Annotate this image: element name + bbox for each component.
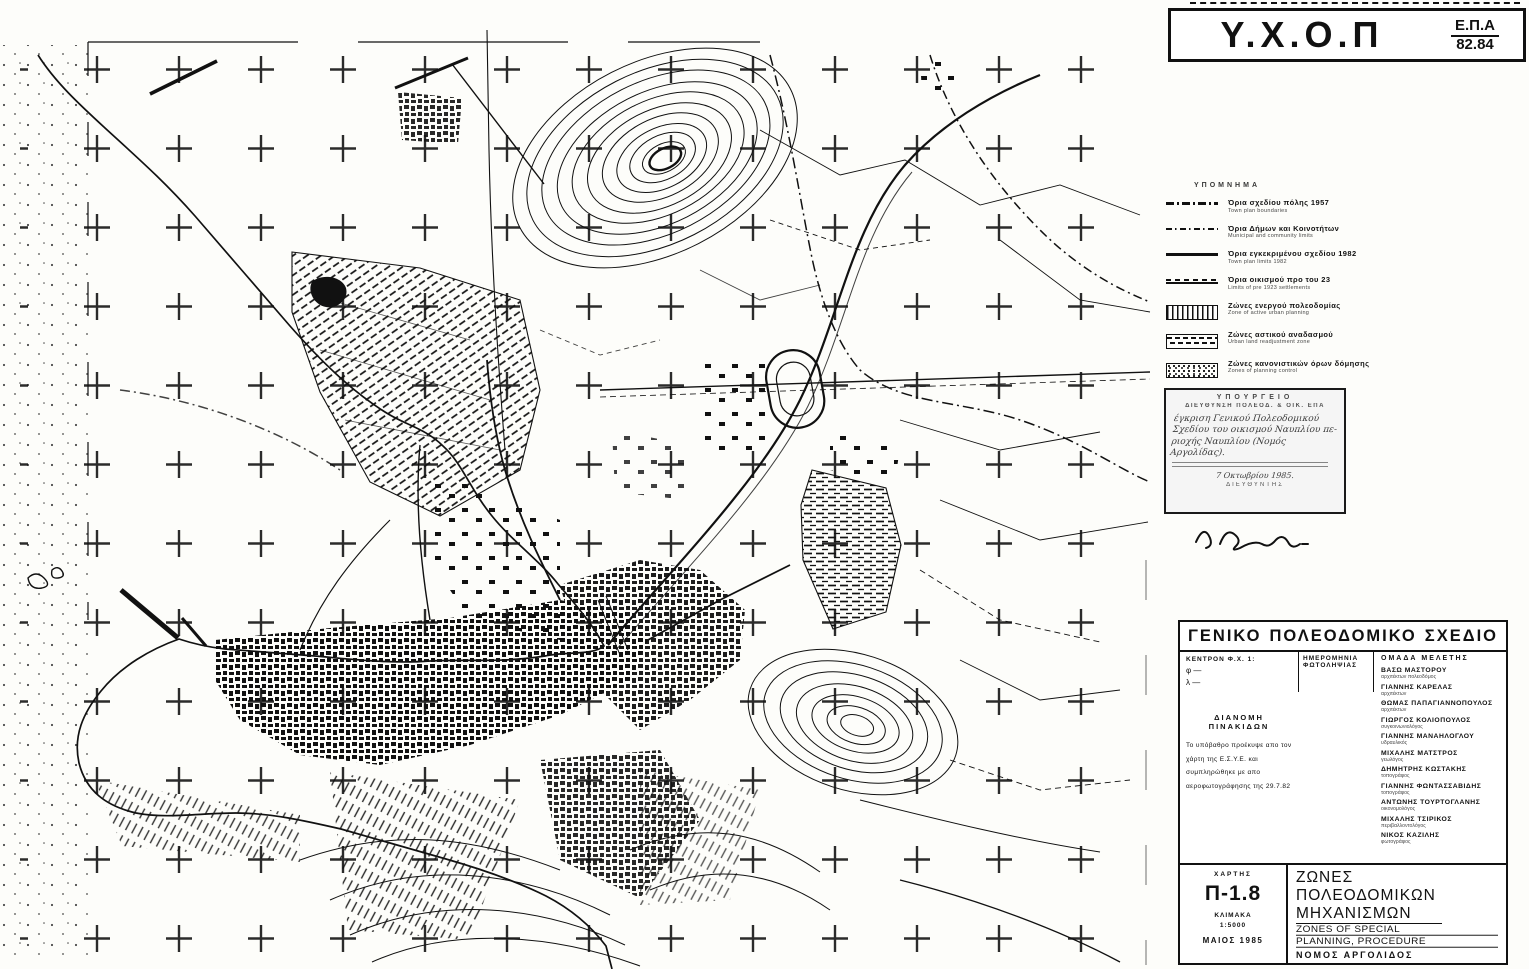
dash-dot-thick-line-swatch bbox=[1166, 202, 1218, 205]
title-block-header: ΓΕΝΙΚΟ ΠΟΛΕΟΔΟΜΙΚΟ ΣΧΕΔΙΟ bbox=[1180, 622, 1506, 652]
team-label: ΟΜΑΔΑ ΜΕΛΕΤΗΣ bbox=[1381, 655, 1499, 662]
legend-label-en: Town plan limits 1982 bbox=[1228, 259, 1357, 265]
dashed-hatch-box-swatch bbox=[1166, 334, 1218, 349]
stamp-director-title: ΔΙΕΥΘΥΝΤΗΣ bbox=[1172, 482, 1338, 488]
title-word: ΣΧΕΔΙΟ bbox=[1425, 627, 1498, 646]
prefecture-label: ΝΟΜΟΣ ΑΡΓΟΛΙΔΟΣ bbox=[1296, 950, 1498, 960]
program-years: 82.84 bbox=[1456, 36, 1494, 53]
legend-item: Ζώνες αστικού αναδασμού Urban land readj… bbox=[1166, 331, 1384, 349]
legend: ΥΠΟΜΝΗΜΑ Όρια σχεδίου πόλης 1957 Town pl… bbox=[1166, 182, 1384, 422]
dash-dot-thin-line-swatch bbox=[1166, 228, 1218, 230]
subject-english-line2: PLANNING, PROCEDURE bbox=[1296, 936, 1498, 947]
distribution-note: Το υπόβαθρο προέκυψε απο τον χάρτη της Ε… bbox=[1186, 739, 1292, 794]
legend-label-en: Municipal and community limits bbox=[1228, 233, 1339, 239]
team-member-role: τοπογράφος bbox=[1381, 790, 1499, 796]
map-number-cell: ΧΑΡΤΗΣ Π-1.8 ΚΛΙΜΑΚΑ 1:5000 ΜΑΙΟΣ 1985 bbox=[1180, 865, 1288, 963]
team-member-role: αρχιτέκτων bbox=[1381, 707, 1499, 713]
team-member-role: φωτογράφος bbox=[1381, 839, 1499, 845]
stamp-rule bbox=[1172, 462, 1328, 463]
program-name: Ε.Π.Α bbox=[1451, 18, 1499, 37]
legend-item: Όρια σχεδίου πόλης 1957 Town plan bounda… bbox=[1166, 199, 1384, 214]
distribution-title: ΔΙΑΝΟΜΗ ΠΙΝΑΚΙΔΩΝ bbox=[1186, 713, 1292, 731]
legend-item: Όρια Δήμων και Κοινοτήτων Municipal and … bbox=[1166, 225, 1384, 240]
scale-value: 1:5000 bbox=[1220, 922, 1246, 929]
sea-speckle bbox=[0, 45, 90, 955]
legend-label-en: Zones of planning control bbox=[1228, 368, 1369, 374]
legend-label-gr: Ζώνες ενεργού πολεοδομίας bbox=[1228, 302, 1341, 311]
phi-coordinate: φ — bbox=[1186, 666, 1292, 675]
solid-dashed-line-swatch bbox=[1166, 279, 1218, 284]
title-word: ΠΟΛΕΟΔΟΜΙΚΟ bbox=[1269, 627, 1416, 646]
center-label: ΚΕΝΤΡΟΝ Φ.Χ. 1: bbox=[1186, 656, 1292, 663]
team-member-role: αρχιτέκτων bbox=[1381, 691, 1499, 697]
scanned-planning-map-sheet: Υ.Χ.Ο.Π Ε.Π.Α 82.84 ΥΠΟΜΝΗΜΑ Όρια σχεδίο… bbox=[0, 0, 1529, 969]
title-word: ΓΕΝΙΚΟ bbox=[1188, 627, 1261, 646]
subject-greek-line1: ΖΩΝΕΣ ΠΟΛΕΟΔΟΜΙΚΩΝ bbox=[1296, 869, 1498, 905]
legend-label-gr: Ζώνες αστικού αναδασμού bbox=[1228, 331, 1333, 340]
distribution-cell: ΔΙΑΝΟΜΗ ΠΙΝΑΚΙΔΩΝ Το υπόβαθρο προέκυψε α… bbox=[1186, 713, 1292, 794]
team-member-name: ΓΙΩΡΓΟΣ ΚΟΛΙΟΠΟΥΛΟΣ bbox=[1381, 717, 1499, 724]
program-box: Ε.Π.Α 82.84 bbox=[1433, 18, 1523, 53]
legend-title: ΥΠΟΜΝΗΜΑ bbox=[1194, 182, 1384, 189]
legend-label-en: Town plan boundaries bbox=[1228, 208, 1329, 214]
header-dashed-rule-top bbox=[1190, 2, 1520, 4]
team-member-name: ΜΙΧΑΛΗΣ ΤΣΙΡΙΚΟΣ bbox=[1381, 816, 1499, 823]
scale-label: ΚΛΙΜΑΚΑ bbox=[1214, 912, 1251, 919]
photo-date-label: ΗΜΕΡΟΜΗΝΙΑ bbox=[1303, 655, 1369, 662]
stamp-rule bbox=[1172, 466, 1328, 467]
map-label: ΧΑΡΤΗΣ bbox=[1180, 871, 1286, 878]
sheet-center-cell: ΚΕΝΤΡΟΝ Φ.Χ. 1: φ — λ — ΔΙΑΝΟΜΗ ΠΙΝΑΚΙΔΩ… bbox=[1180, 652, 1298, 864]
team-member-name: ΓΙΑΝΝΗΣ ΚΑΡΕΛΑΣ bbox=[1381, 684, 1499, 691]
photo-date-label: ΦΩΤΟΛΗΨΙΑΣ bbox=[1303, 662, 1369, 669]
legend-label-en: Zone of active urban planning bbox=[1228, 310, 1341, 316]
legend-item: Όρια οικισμού προ του 23 Limits of pre 1… bbox=[1166, 276, 1384, 291]
study-team-cell: ΟΜΑΔΑ ΜΕΛΕΤΗΣ ΒΑΣΩ ΜΑΣΤΟΡΟΥαρχιτέκτων πο… bbox=[1374, 652, 1506, 864]
team-member-name: ΓΙΑΝΝΗΣ ΦΩΝΤΑΣΣΑΒΙΔΗΣ bbox=[1381, 783, 1499, 790]
team-member-role: γεωλόγος bbox=[1381, 757, 1499, 763]
legend-label-en: Urban land readjustment zone bbox=[1228, 339, 1333, 345]
team-member-role: τοπογράφος bbox=[1381, 773, 1499, 779]
team-member-role: περιβαλλοντολόγος bbox=[1381, 823, 1499, 829]
legend-label-gr: Όρια Δήμων και Κοινοτήτων bbox=[1228, 225, 1339, 234]
dotted-box-swatch bbox=[1166, 363, 1218, 378]
solid-line-swatch bbox=[1166, 253, 1218, 256]
team-member-role: αρχιτέκτων πολεοδόμος bbox=[1381, 674, 1499, 680]
stamp-handwriting-line: Σχεδίου του οικισμού Ναυπλίου πε- bbox=[1172, 425, 1339, 436]
signature-scribble bbox=[1190, 516, 1330, 556]
stamp-ministry-line: ΥΠΟΥΡΓΕΙΟ bbox=[1172, 394, 1338, 401]
map-date: ΜΑΙΟΣ 1985 bbox=[1180, 936, 1286, 945]
team-member-name: ΓΙΑΝΝΗΣ ΜΑΝΑΗΛΟΓΛΟΥ bbox=[1381, 733, 1499, 740]
agency-header-box: Υ.Χ.Ο.Π Ε.Π.Α 82.84 bbox=[1168, 8, 1526, 62]
subject-english-line1: ZONES OF SPECIAL bbox=[1296, 924, 1498, 935]
legend-label-en: Limits of pre 1923 settlements bbox=[1228, 285, 1330, 291]
legend-item: Ζώνες ενεργού πολεοδομίας Zone of active… bbox=[1166, 302, 1384, 320]
stamp-handwriting-line: ριοχής Ναυπλίου (Νομός Αργολίδας). bbox=[1170, 437, 1338, 460]
subject-cell: ΖΩΝΕΣ ΠΟΛΕΟΔΟΜΙΚΩΝ ΜΗΧΑΝΙΣΜΩΝ ZONES OF S… bbox=[1288, 865, 1506, 963]
team-member-role: υδραυλικός bbox=[1381, 740, 1499, 746]
team-member-name: ΑΝΤΩΝΗΣ ΤΟΥΡΤΟΓΛΑΝΗΣ bbox=[1381, 799, 1499, 806]
legend-label-gr: Ζώνες κανονιστικών όρων δόμησης bbox=[1228, 360, 1369, 369]
map-canvas bbox=[0, 0, 1152, 969]
team-member-name: ΜΙΧΑΛΗΣ ΜΑΤΣΤΡΟΣ bbox=[1381, 750, 1499, 757]
village-north bbox=[398, 92, 462, 144]
subject-greek-line2: ΜΗΧΑΝΙΣΜΩΝ bbox=[1296, 905, 1442, 924]
vertical-hatch-box-swatch bbox=[1166, 305, 1218, 320]
team-member-name: ΘΩΜΑΣ ΠΑΠΑΓΙΑΝΝΟΠΟΥΛΟΣ bbox=[1381, 700, 1499, 707]
legend-label-gr: Όρια εγκεκριμένου σχεδίου 1982 bbox=[1228, 250, 1357, 259]
team-member-name: ΝΙΚΟΣ ΚΑΖΙΛΗΣ bbox=[1381, 832, 1499, 839]
legend-label-gr: Όρια οικισμού προ του 23 bbox=[1228, 276, 1330, 285]
photo-date-cell: ΗΜΕΡΟΜΗΝΙΑ ΦΩΤΟΛΗΨΙΑΣ bbox=[1298, 652, 1374, 692]
legend-label-gr: Όρια σχεδίου πόλης 1957 bbox=[1228, 199, 1329, 208]
lambda-coordinate: λ — bbox=[1186, 678, 1292, 687]
approval-stamp: ΥΠΟΥΡΓΕΙΟ ΔΙΕΥΘΥΝΣΗ ΠΟΛΕΟΔ. & ΟΙΚ. ΕΠΑ έ… bbox=[1164, 388, 1346, 514]
legend-item: Ζώνες κανονιστικών όρων δόμησης Zones of… bbox=[1166, 360, 1384, 378]
header-dashed-rule-bottom bbox=[1176, 60, 1520, 62]
team-member-name: ΒΑΣΩ ΜΑΣΤΟΡΟΥ bbox=[1381, 667, 1499, 674]
stamp-directorate-line: ΔΙΕΥΘΥΝΣΗ ΠΟΛΕΟΔ. & ΟΙΚ. ΕΠΑ bbox=[1172, 403, 1338, 409]
title-block: ΓΕΝΙΚΟ ΠΟΛΕΟΔΟΜΙΚΟ ΣΧΕΔΙΟ ΚΕΝΤΡΟΝ Φ.Χ. 1… bbox=[1178, 620, 1508, 965]
agency-name: Υ.Χ.Ο.Π bbox=[1171, 14, 1433, 56]
map-number: Π-1.8 bbox=[1180, 882, 1286, 906]
team-member-name: ΔΗΜΗΤΡΗΣ ΚΩΣΤΑΚΗΣ bbox=[1381, 766, 1499, 773]
legend-item: Όρια εγκεκριμένου σχεδίου 1982 Town plan… bbox=[1166, 250, 1384, 265]
team-member-role: οικονομολόγος bbox=[1381, 806, 1499, 812]
team-member-role: συγκοινωνιολόγος bbox=[1381, 724, 1499, 730]
stamp-handwriting-line: έγκριση Γενικού Πολεοδομικού bbox=[1173, 414, 1340, 425]
stamp-date: 7 Οκτωβρίου 1985. bbox=[1171, 471, 1338, 481]
